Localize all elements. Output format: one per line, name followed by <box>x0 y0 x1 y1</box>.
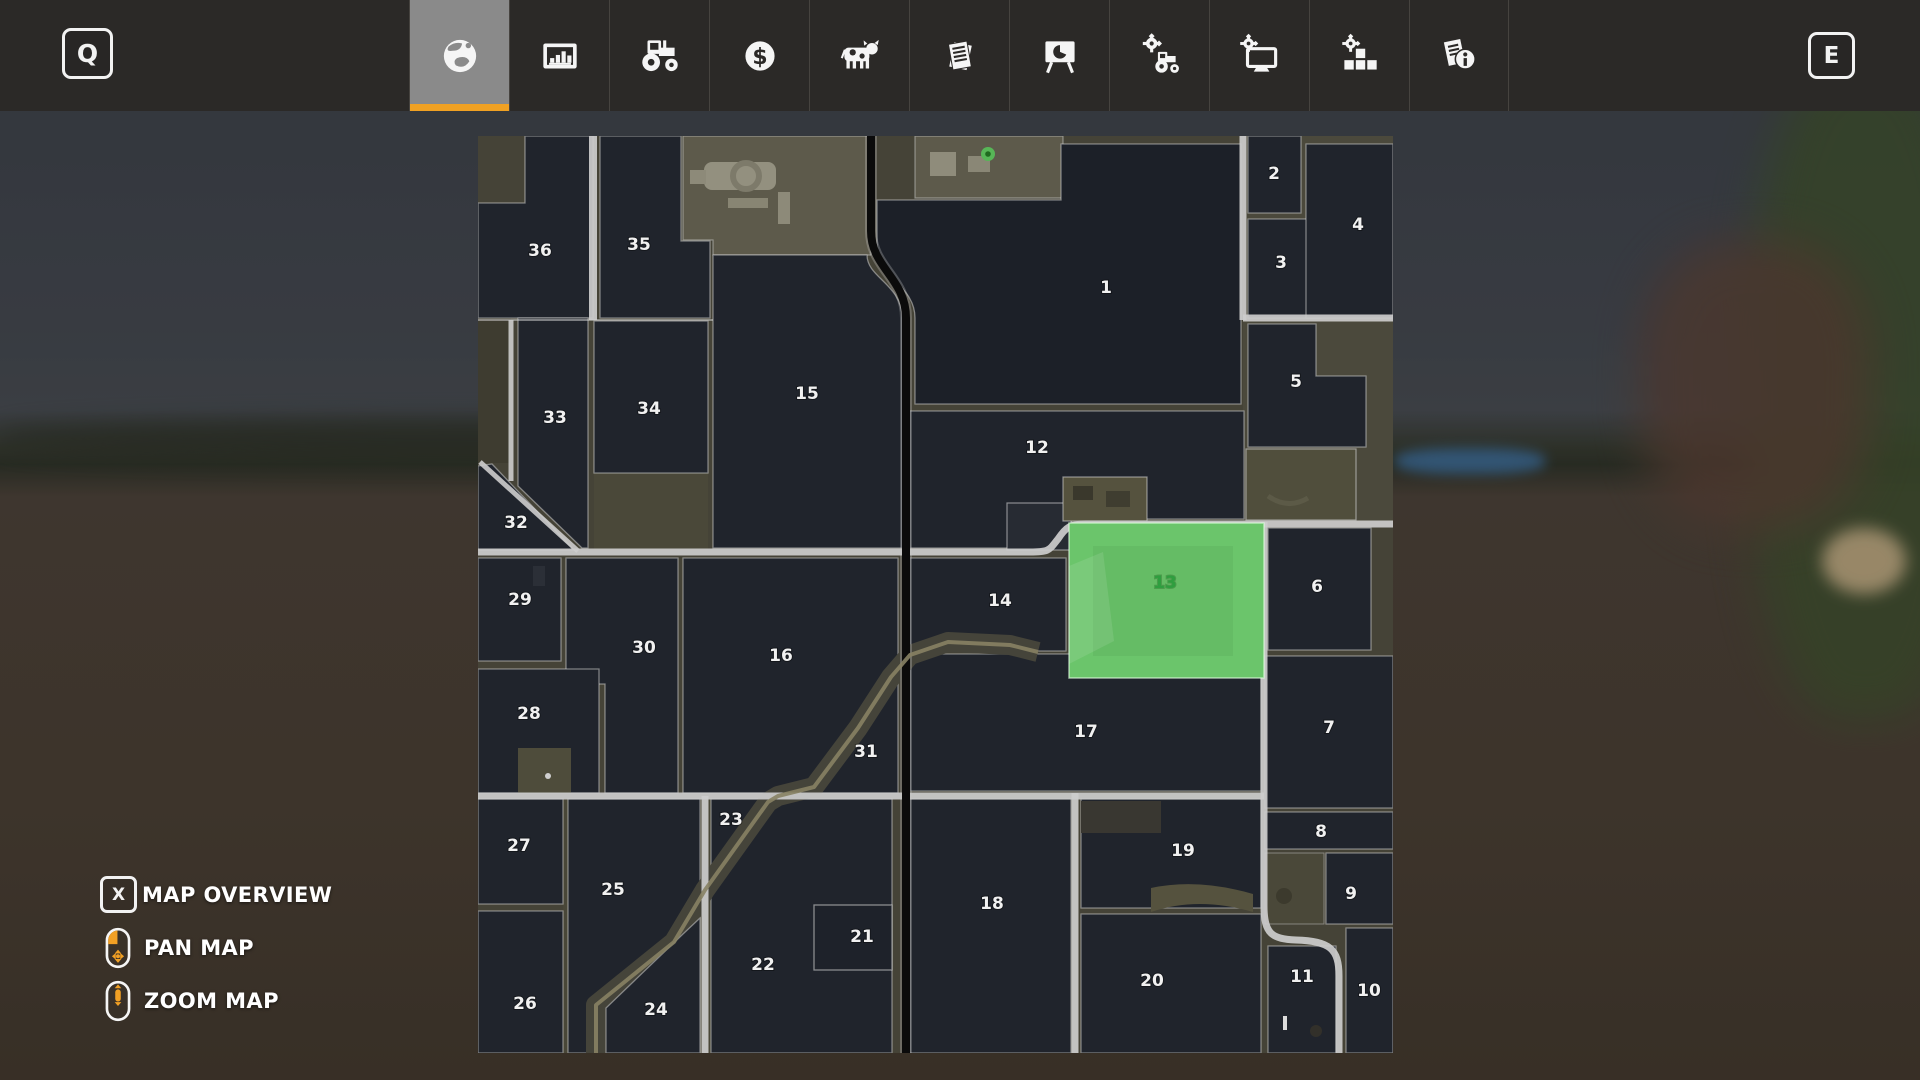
vehicle-maintenance-icon <box>1135 31 1185 81</box>
tab-vehicles[interactable] <box>609 0 709 111</box>
legend-map-overview-label: MAP OVERVIEW <box>142 883 332 907</box>
field-label-22: 22 <box>751 955 775 975</box>
key-hint-e: E <box>1808 32 1855 79</box>
field-label-10: 10 <box>1357 981 1381 1001</box>
animals-cow-icon <box>835 31 885 81</box>
field-label-6: 6 <box>1311 577 1323 597</box>
garage-tractor-icon <box>635 31 685 81</box>
tab-contracts[interactable] <box>909 0 1009 111</box>
tab-finances[interactable]: $ <box>709 0 809 111</box>
field-label-9: 9 <box>1345 884 1357 904</box>
menu-tabs: $ <box>409 0 1509 111</box>
general-settings-icon <box>1235 31 1285 81</box>
field-label-24: 24 <box>644 1000 668 1020</box>
legend-zoom-map-label: ZOOM MAP <box>144 989 279 1013</box>
field-label-34: 34 <box>637 399 661 419</box>
field-label-36: 36 <box>528 241 552 261</box>
field-label-15: 15 <box>795 384 819 404</box>
field-label-2: 2 <box>1268 164 1280 184</box>
field-label-30: 30 <box>632 638 656 658</box>
field-label-11: 11 <box>1290 967 1314 987</box>
field-label-19: 19 <box>1171 841 1195 861</box>
key-hint-x-label: X <box>112 885 125 905</box>
field-label-20: 20 <box>1140 971 1164 991</box>
legend-pan-map: PAN MAP <box>104 927 254 969</box>
field-label-7: 7 <box>1323 718 1335 738</box>
field-label-23: 23 <box>719 810 743 830</box>
field-label-25: 25 <box>601 880 625 900</box>
field-label-16: 16 <box>769 646 793 666</box>
field-label-32: 32 <box>504 513 528 533</box>
field-label-18: 18 <box>980 894 1004 914</box>
key-hint-x: X <box>100 876 137 913</box>
field-label-13: 13 <box>1153 573 1177 593</box>
map-globe-icon <box>435 31 485 81</box>
game-settings-icon <box>1335 31 1385 81</box>
mouse-zoom-icon <box>104 980 132 1022</box>
legend-map-overview: MAP OVERVIEW <box>142 876 332 913</box>
tab-game-settings[interactable] <box>1309 0 1409 111</box>
field-label-5: 5 <box>1290 372 1302 392</box>
field-label-33: 33 <box>543 408 567 428</box>
field-label-35: 35 <box>627 235 651 255</box>
field-label-28: 28 <box>517 704 541 724</box>
svg-text:$: $ <box>752 45 767 70</box>
poi-green-marker <box>981 147 995 161</box>
legend-pan-map-label: PAN MAP <box>144 936 254 960</box>
legend-zoom-map: ZOOM MAP <box>104 980 279 1022</box>
statistics-chart-icon <box>535 31 585 81</box>
field-label-1: 1 <box>1100 278 1112 298</box>
key-hint-e-label: E <box>1824 43 1840 69</box>
field-label-31: 31 <box>854 742 878 762</box>
field-label-3: 3 <box>1275 253 1287 273</box>
tab-map[interactable] <box>409 0 509 111</box>
tab-statistics[interactable] <box>509 0 609 111</box>
field-label-27: 27 <box>507 836 531 856</box>
contracts-papers-icon <box>935 31 985 81</box>
help-info-icon <box>1434 31 1484 81</box>
key-hint-q-label: Q <box>77 39 98 68</box>
production-board-icon <box>1035 31 1085 81</box>
mouse-pan-icon <box>104 927 132 969</box>
field-label-8: 8 <box>1315 822 1327 842</box>
field-label-21: 21 <box>850 927 874 947</box>
field-label-14: 14 <box>988 591 1012 611</box>
field-label-12: 12 <box>1025 438 1049 458</box>
tab-animals[interactable] <box>809 0 909 111</box>
tab-production[interactable] <box>1009 0 1109 111</box>
tab-maintenance[interactable] <box>1109 0 1209 111</box>
top-menu-bar: Q E <box>0 0 1920 111</box>
field-label-4: 4 <box>1352 215 1364 235</box>
key-hint-q: Q <box>62 28 113 79</box>
field-label-29: 29 <box>508 590 532 610</box>
tab-help[interactable] <box>1409 0 1509 111</box>
field-label-17: 17 <box>1074 722 1098 742</box>
map-overview[interactable]: 1234567891011121314151617181920212223242… <box>478 136 1393 1053</box>
field-label-26: 26 <box>513 994 537 1014</box>
map-canvas: 1234567891011121314151617181920212223242… <box>478 136 1393 1053</box>
finances-dollar-icon: $ <box>735 31 785 81</box>
tab-general-settings[interactable] <box>1209 0 1309 111</box>
